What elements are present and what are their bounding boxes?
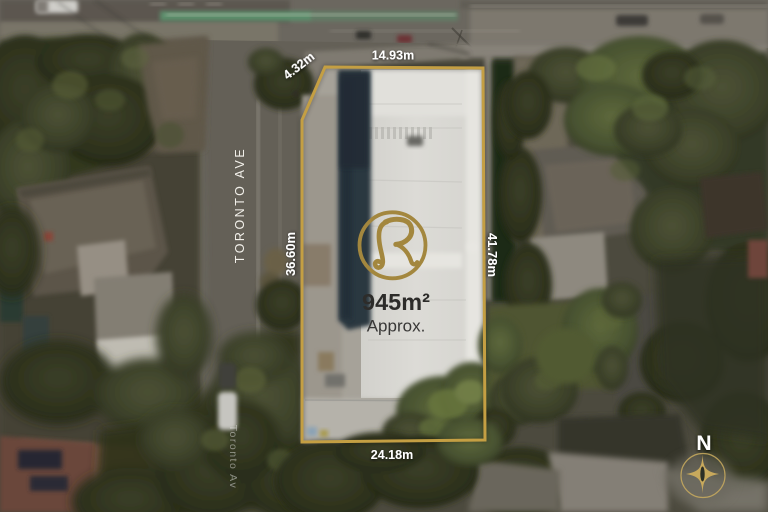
svg-text:N: N [696,432,711,455]
svg-text:945m²: 945m² [362,289,430,315]
svg-text:14.93m: 14.93m [372,49,414,63]
svg-text:Approx.: Approx. [367,317,426,336]
svg-text:36.60m: 36.60m [283,232,298,276]
svg-text:24.18m: 24.18m [371,448,413,462]
svg-text:Toronto Av: Toronto Av [227,425,239,489]
svg-text:TORONTO AVE: TORONTO AVE [233,147,247,263]
svg-text:41.78m: 41.78m [485,233,500,277]
